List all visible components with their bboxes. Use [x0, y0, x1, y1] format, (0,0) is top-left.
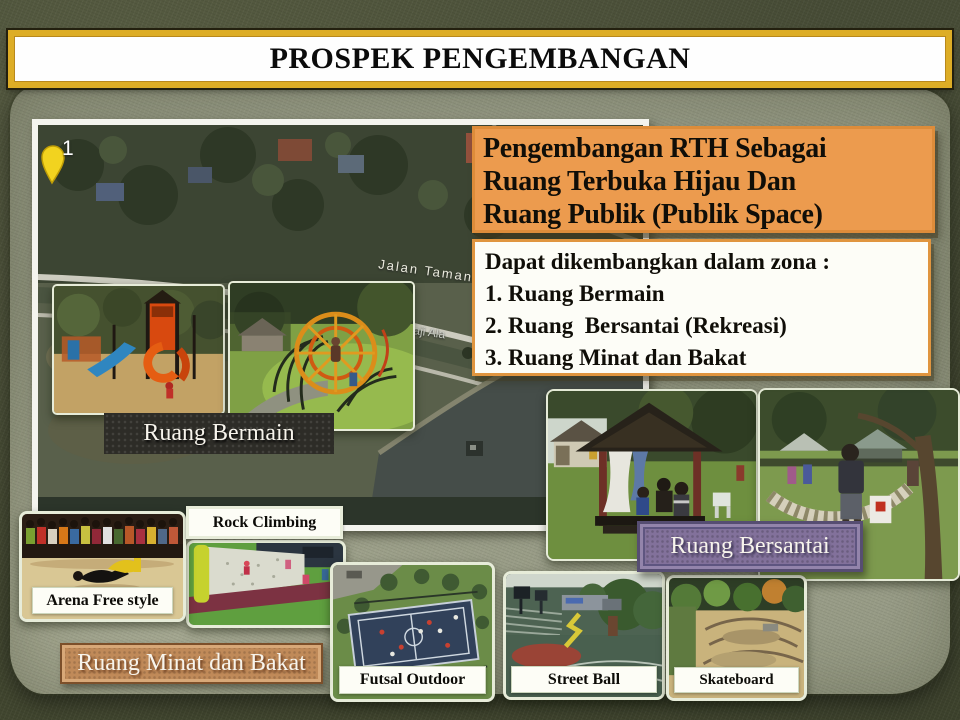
label-skateboard: Skateboard: [674, 667, 799, 693]
photo-playground-slides: [52, 284, 225, 415]
label-street-ball: Street Ball: [511, 666, 657, 693]
card-arena-free-style: Arena Free style: [19, 511, 186, 622]
heading-box: Pengembangan RTH Sebagai Ruang Terbuka H…: [472, 126, 935, 233]
card-street-ball: Street Ball: [503, 571, 665, 700]
label-futsal-outdoor: Futsal Outdoor: [339, 666, 486, 694]
card-futsal-outdoor: Futsal Outdoor: [330, 562, 495, 702]
heading-line-3: Ruang Publik (Publik Space): [483, 198, 924, 231]
photo-rock-climbing: [186, 540, 346, 628]
label-ruang-bersantai-text: Ruang Bersantai: [670, 533, 829, 560]
label-ruang-bermain-text: Ruang Bermain: [143, 420, 294, 447]
zona-intro: Dapat dikembangkan dalam zona :: [485, 246, 918, 278]
label-rock-climbing: Rock Climbing: [186, 506, 343, 539]
heading-line-1: Pengembangan RTH Sebagai: [483, 132, 924, 165]
zona-item-3: 3. Ruang Minat dan Bakat: [485, 342, 918, 374]
label-ruang-minat-text: Ruang Minat dan Bakat: [77, 650, 306, 677]
zona-box: Dapat dikembangkan dalam zona : 1. Ruang…: [472, 239, 931, 376]
photo-playground-wheel: [228, 281, 415, 431]
slide-title: PROSPEK PENGEMBANGAN: [270, 42, 691, 76]
card-skateboard: Skateboard: [666, 575, 807, 701]
map-marker-label: 1: [62, 137, 74, 161]
zona-item-1: 1. Ruang Bermain: [485, 278, 918, 310]
label-ruang-minat-dan-bakat: Ruang Minat dan Bakat: [60, 643, 323, 684]
zona-item-2: 2. Ruang Bersantai (Rekreasi): [485, 310, 918, 342]
presentation-slide: PROSPEK PENGEMBANGAN: [0, 0, 960, 720]
heading-line-2: Ruang Terbuka Hijau Dan: [483, 165, 924, 198]
label-arena-free-style: Arena Free style: [32, 587, 173, 614]
title-banner: PROSPEK PENGEMBANGAN: [8, 30, 952, 88]
label-ruang-bersantai: Ruang Bersantai: [637, 521, 863, 572]
label-ruang-bermain: Ruang Bermain: [104, 413, 334, 454]
